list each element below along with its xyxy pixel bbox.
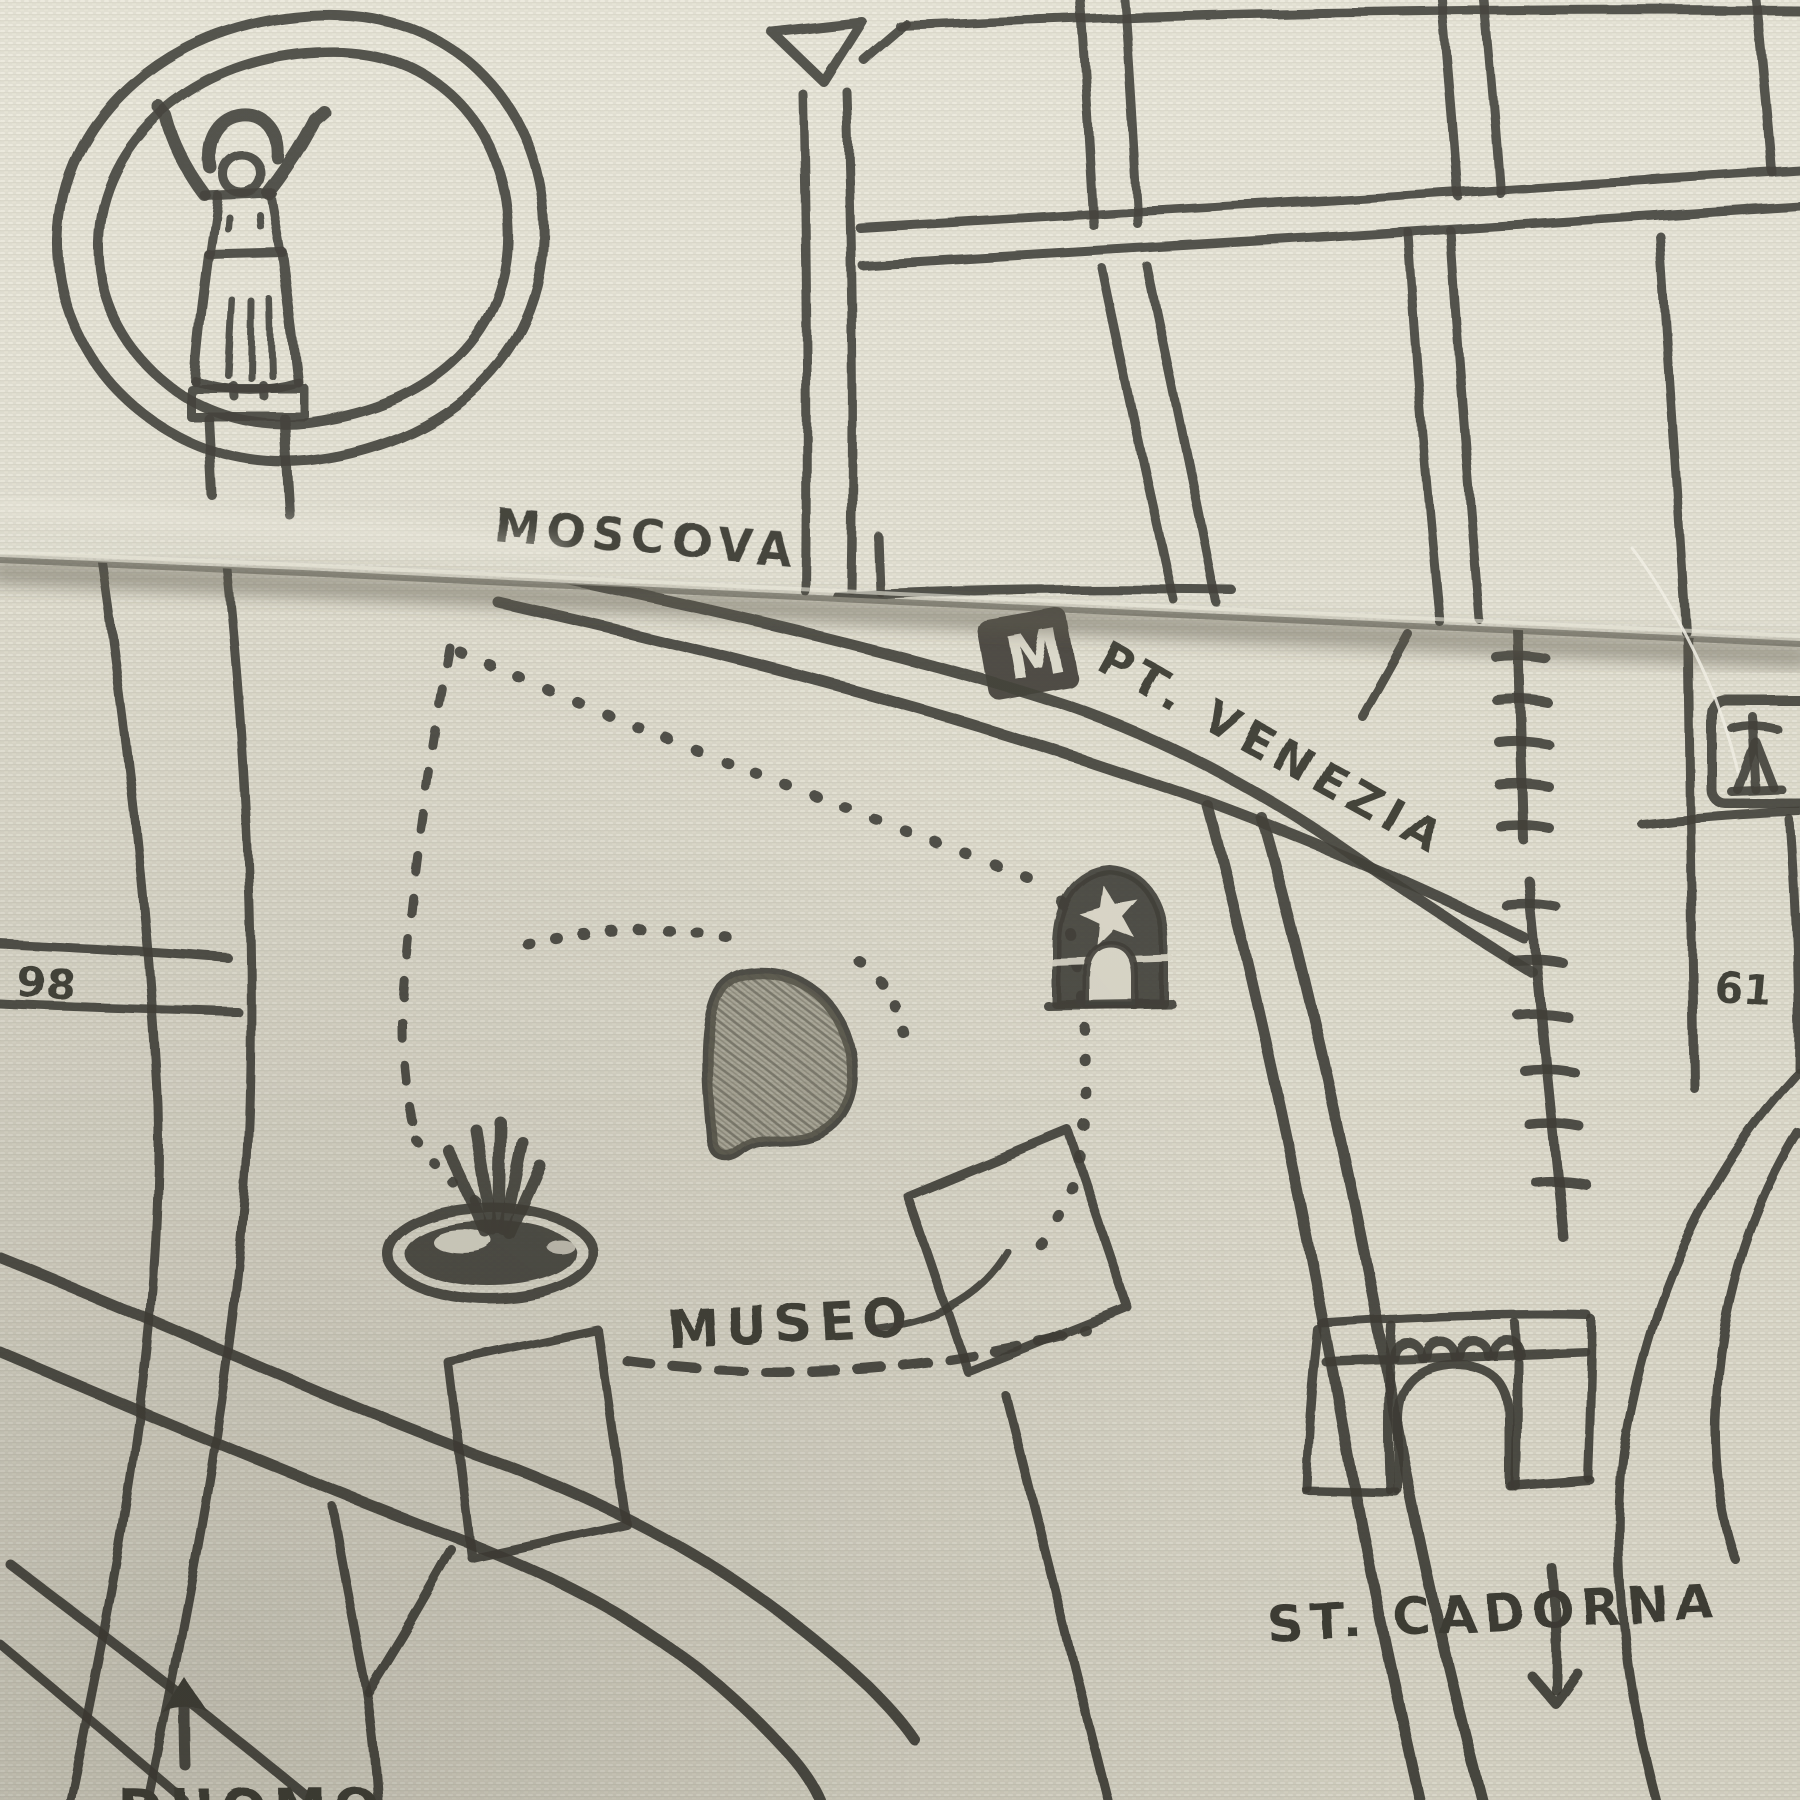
fabric-map-photo: 98 61 [0, 0, 1800, 1800]
corner-vignette [0, 0, 1800, 1800]
map-canvas: 98 61 [0, 0, 1800, 1800]
